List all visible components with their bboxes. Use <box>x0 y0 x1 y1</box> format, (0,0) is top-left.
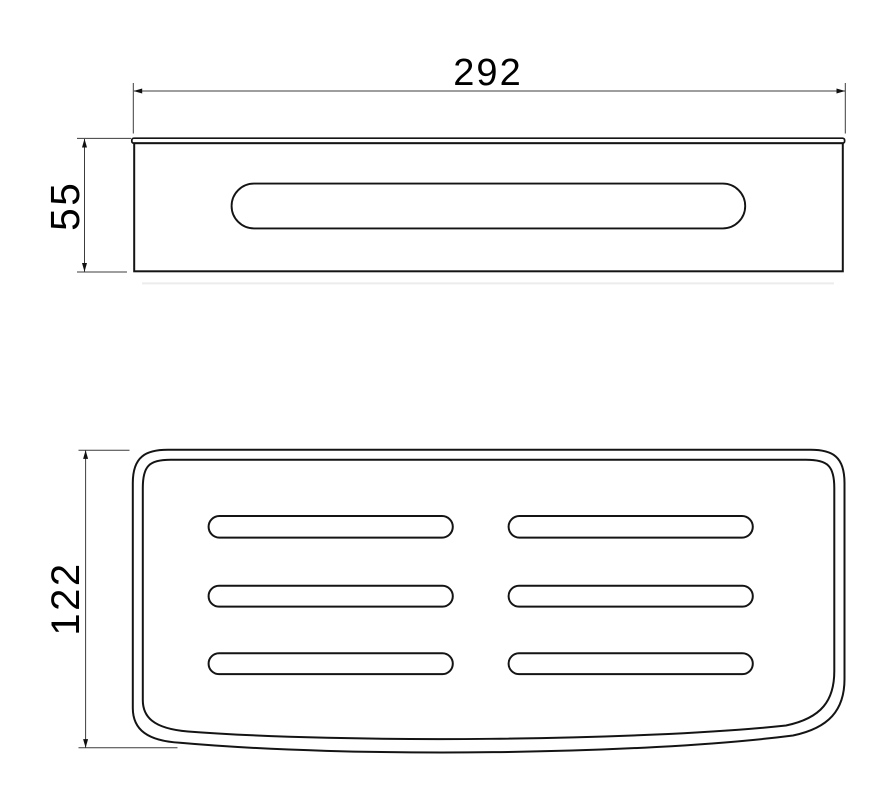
svg-text:122: 122 <box>44 561 88 635</box>
svg-text:55: 55 <box>42 181 88 231</box>
svg-text:292: 292 <box>453 52 522 94</box>
